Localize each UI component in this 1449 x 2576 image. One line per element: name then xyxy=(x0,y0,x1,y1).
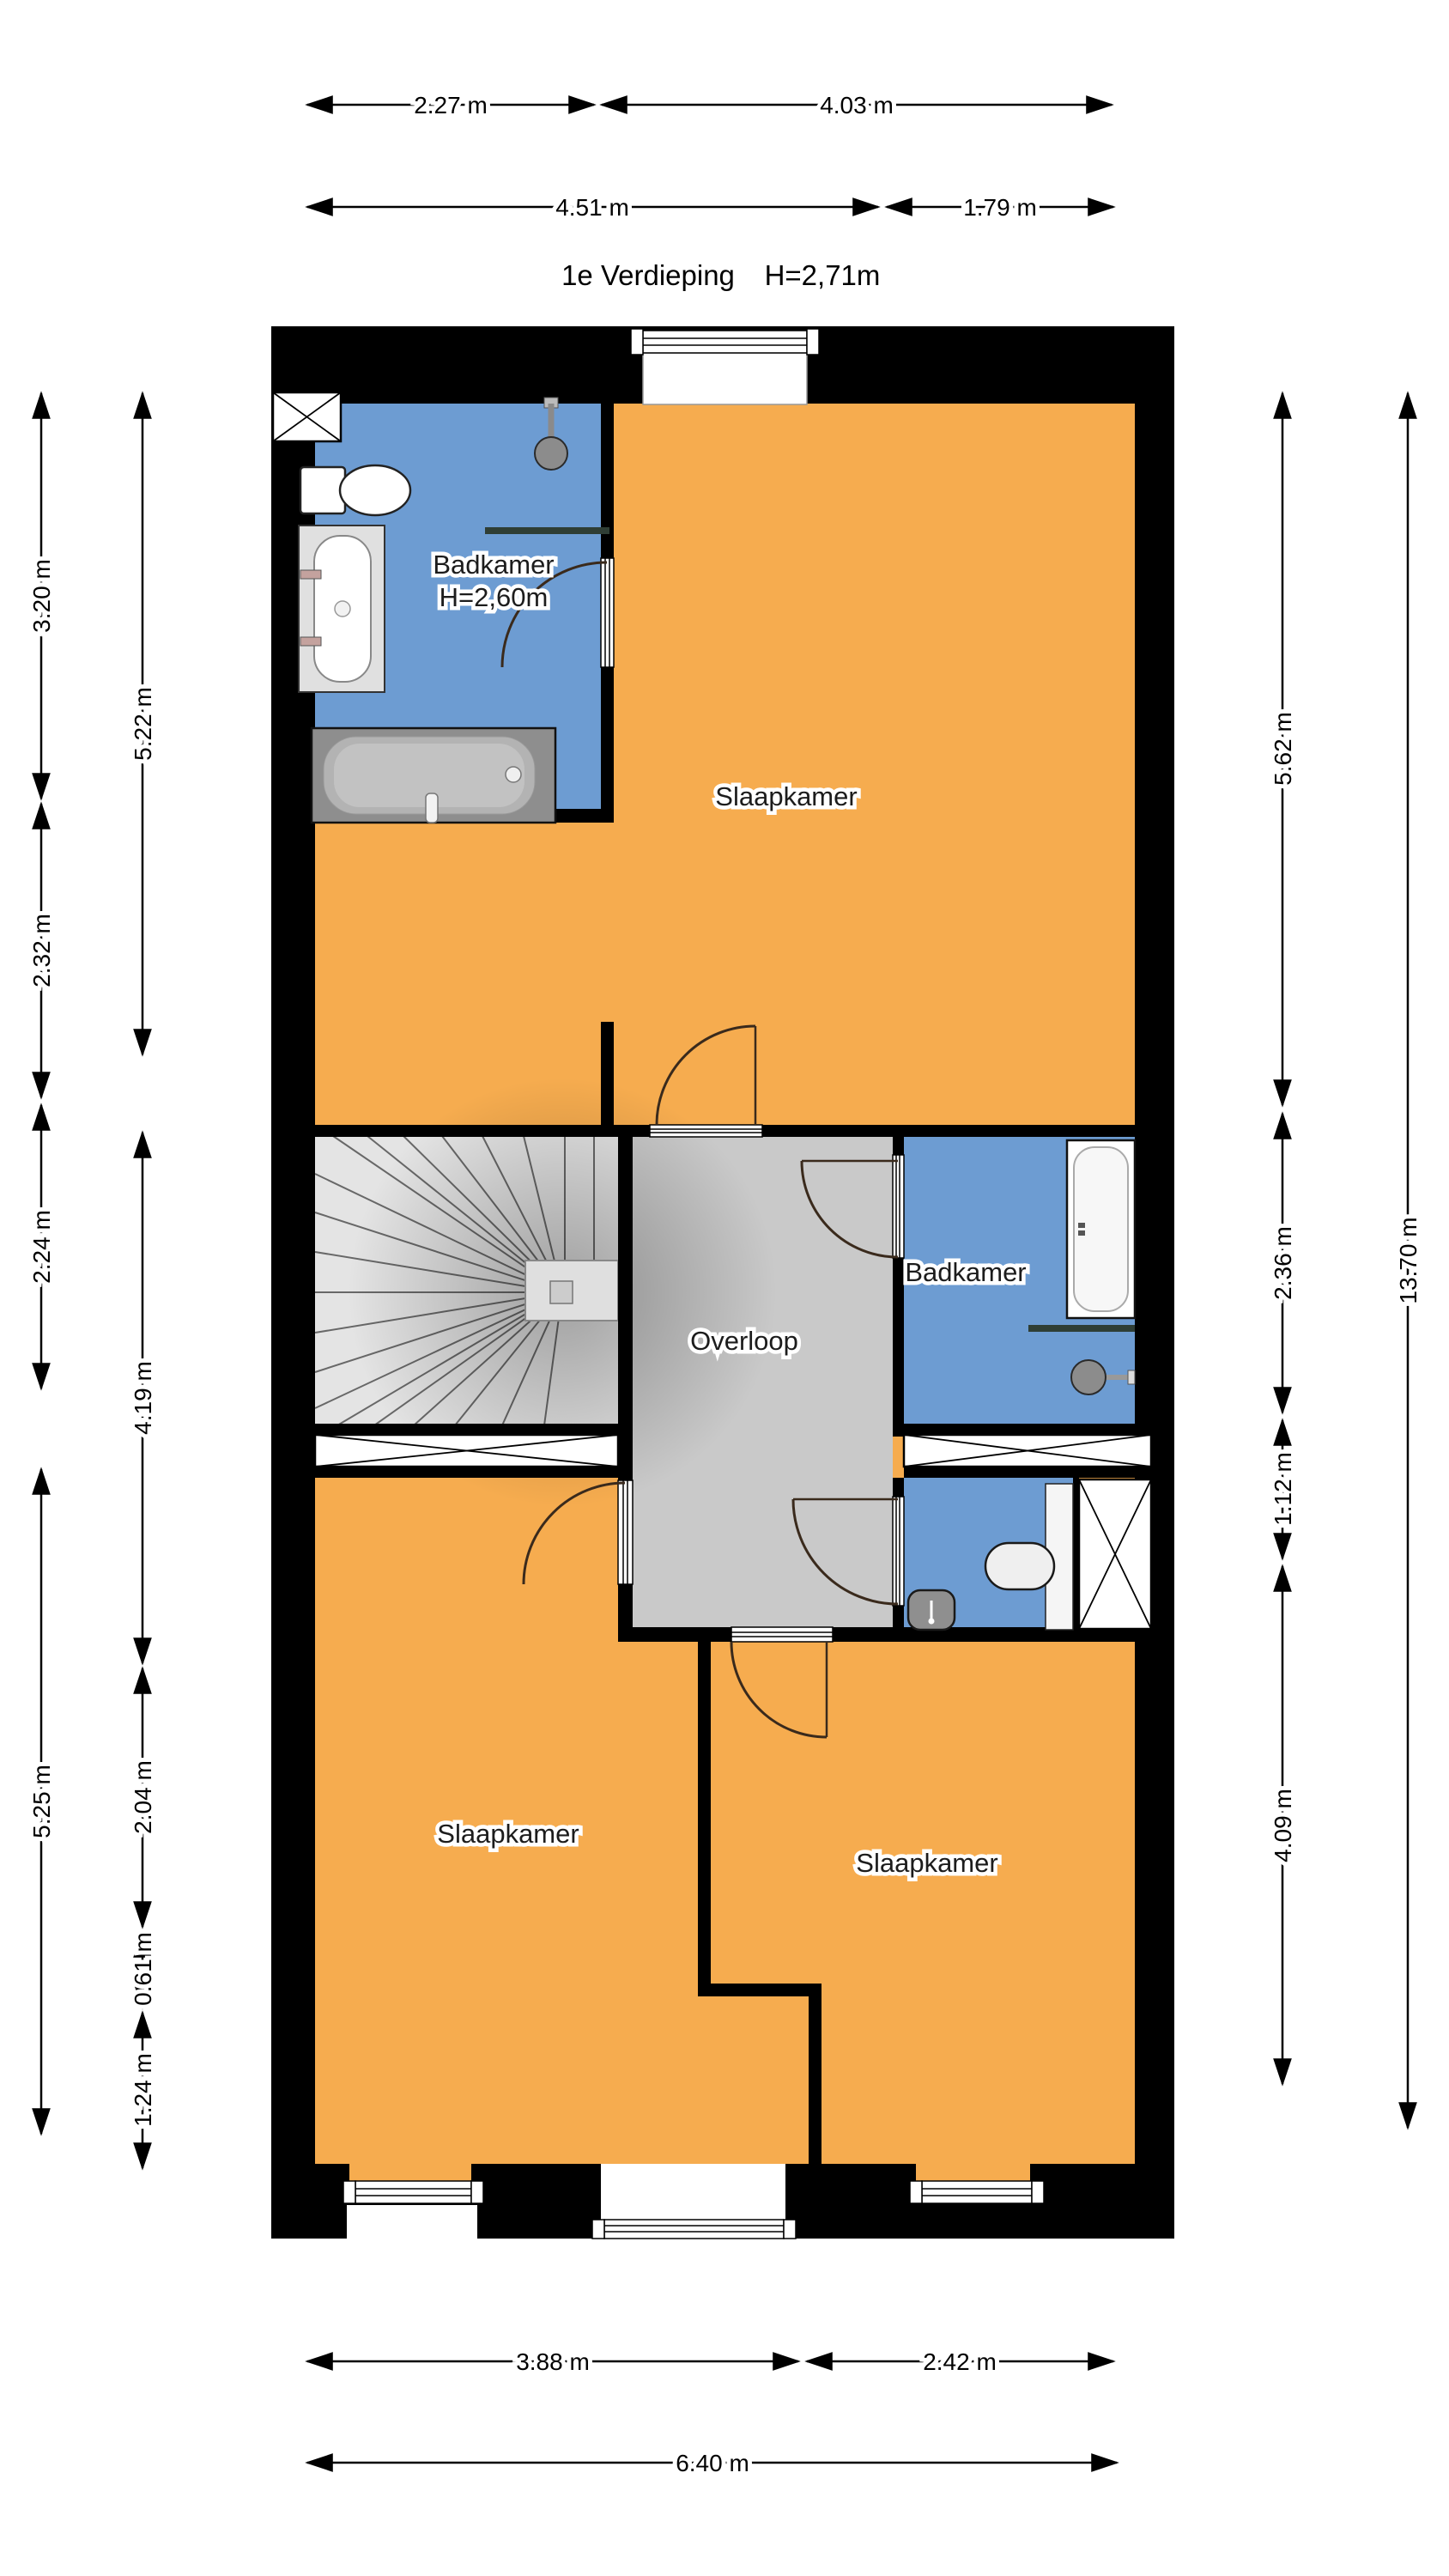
shaft-x-panel-toilet xyxy=(1079,1479,1151,1629)
shaft-x-panel-topleft xyxy=(273,392,341,441)
dim-left-outer-3: 2.24 m xyxy=(28,1210,55,1284)
wall-bath-mid-west-a xyxy=(893,1136,904,1155)
dim-left-inner-4: 0.61 m xyxy=(130,1932,156,2006)
bathtub-icon-mid xyxy=(1067,1140,1135,1318)
corner-sink-icon xyxy=(908,1590,955,1630)
dim-left-inner-5: 1.24 m xyxy=(130,2053,156,2127)
wall-landing-west-a xyxy=(618,1136,633,1480)
dim-left-outer-2: 2.32 m xyxy=(28,914,55,987)
dim-right-inner-4: 4.09 m xyxy=(1270,1789,1296,1862)
label-bedroom-bottom-left: Slaapkamer xyxy=(437,1819,579,1849)
wall-bath-top-east-b xyxy=(601,667,614,823)
wall-void-south xyxy=(315,1467,618,1478)
dim-top2b: 1.79 m xyxy=(963,194,1037,221)
window-bottom-right xyxy=(910,2164,1044,2203)
toilet-icon-top xyxy=(300,465,410,515)
dim-right-outer: 13.70 m xyxy=(1395,1217,1422,1303)
wall-divider-lower xyxy=(809,1996,822,2164)
wall-bedroom-stub xyxy=(601,1022,614,1136)
dim-left-outer-4: 5.25 m xyxy=(28,1765,55,1838)
wall-divider-jog xyxy=(698,1984,822,1996)
wall-toilet-west-a xyxy=(893,1478,904,1497)
dim-left-outer-1: 3.20 m xyxy=(28,559,55,633)
wall-divider-upper xyxy=(698,1642,711,1996)
dim-right-inner-2: 2.36 m xyxy=(1270,1226,1296,1300)
dim-bottom2: 6.40 m xyxy=(676,2450,749,2476)
window-top xyxy=(631,329,819,404)
stair-newel xyxy=(550,1281,573,1303)
dim-top1b: 4.03 m xyxy=(820,92,894,118)
dim-top1a: 2.27 m xyxy=(414,92,488,118)
window-bottom-left xyxy=(343,2164,483,2239)
dim-bottom1b: 2.42 m xyxy=(923,2348,997,2375)
wall-middle-west xyxy=(315,1125,650,1137)
label-landing: Overloop xyxy=(690,1326,798,1356)
wall-landing-west-b xyxy=(618,1584,633,1642)
void-x-panel-mid-right xyxy=(904,1435,1151,1467)
wall-bath-mid-west-b xyxy=(893,1258,904,1437)
plan-title: 1e Verdieping H=2,71m xyxy=(561,259,880,291)
dim-top2a: 4.51 m xyxy=(555,194,629,221)
dim-right-inner-1: 5.62 m xyxy=(1270,712,1296,786)
vanity-sink-icon xyxy=(299,526,385,692)
floor-title: 1e Verdieping xyxy=(561,259,735,291)
wall-middle-east xyxy=(762,1125,1135,1137)
dim-left-inner-3: 2.04 m xyxy=(130,1760,156,1834)
dim-left-inner-1: 5.22 m xyxy=(130,687,156,761)
floorplan-page: 1e Verdieping H=2,71m xyxy=(0,0,1449,2576)
label-bathroom-top-height: H=2,60m xyxy=(440,582,549,612)
dim-bottom1a: 3.88 m xyxy=(516,2348,590,2375)
dim-right-inner-3: 1.12 m xyxy=(1270,1452,1296,1526)
wall-right xyxy=(1135,326,1174,2239)
bathtub-icon-top xyxy=(312,728,555,823)
floorplan-drawing: 1e Verdieping H=2,71m xyxy=(0,0,1449,2576)
wall-toilet-west-b xyxy=(893,1606,904,1642)
wall-bath-mid-void-s xyxy=(904,1467,1151,1478)
label-bedroom-top: Slaapkamer xyxy=(715,781,857,811)
ceiling-height: H=2,71m xyxy=(765,259,881,291)
window-bottom-center xyxy=(592,2164,796,2239)
wall-bath-mid-void-n xyxy=(904,1424,1151,1435)
label-bathroom-mid: Badkamer xyxy=(905,1257,1026,1287)
wall-void-north xyxy=(315,1424,618,1435)
label-bathroom-top: Badkamer xyxy=(433,550,554,580)
void-x-panel-under-stairs xyxy=(315,1435,618,1467)
wall-bath-top-east-a xyxy=(601,404,614,558)
wall-landing-south-a xyxy=(633,1627,731,1642)
label-bedroom-bottom-right: Slaapkamer xyxy=(856,1848,997,1878)
dim-left-inner-2: 4.19 m xyxy=(130,1361,156,1435)
